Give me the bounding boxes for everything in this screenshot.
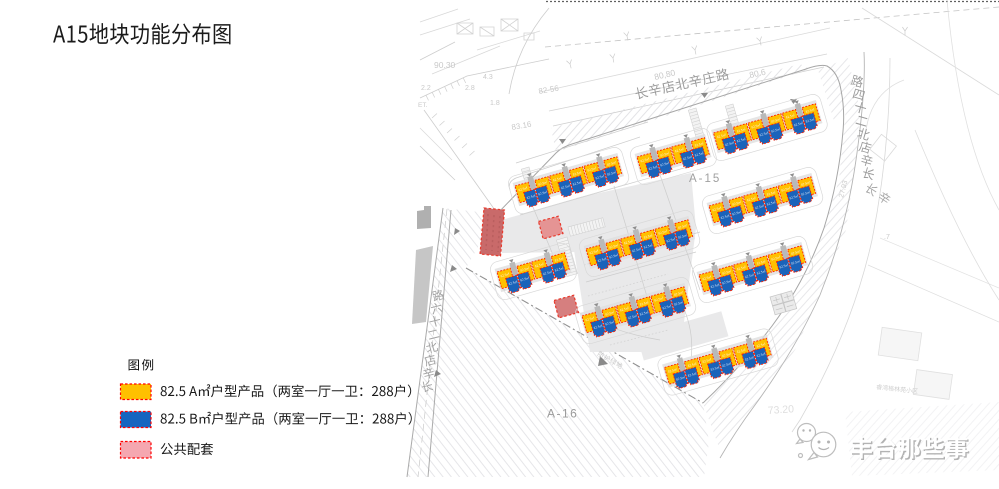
svg-text:2.2: 2.2 [421, 85, 431, 92]
svg-text:1.8: 1.8 [490, 100, 500, 107]
svg-text:4.3: 4.3 [483, 74, 493, 81]
svg-text:90.30: 90.30 [434, 60, 456, 70]
svg-text:2.8: 2.8 [465, 85, 475, 92]
svg-text:A-16: A-16 [547, 407, 578, 421]
svg-text:73.20: 73.20 [767, 403, 794, 417]
svg-text:ET.: ET. [418, 102, 428, 109]
svg-text:.7: .7 [884, 234, 890, 241]
svg-text:A-15: A-15 [689, 173, 721, 185]
